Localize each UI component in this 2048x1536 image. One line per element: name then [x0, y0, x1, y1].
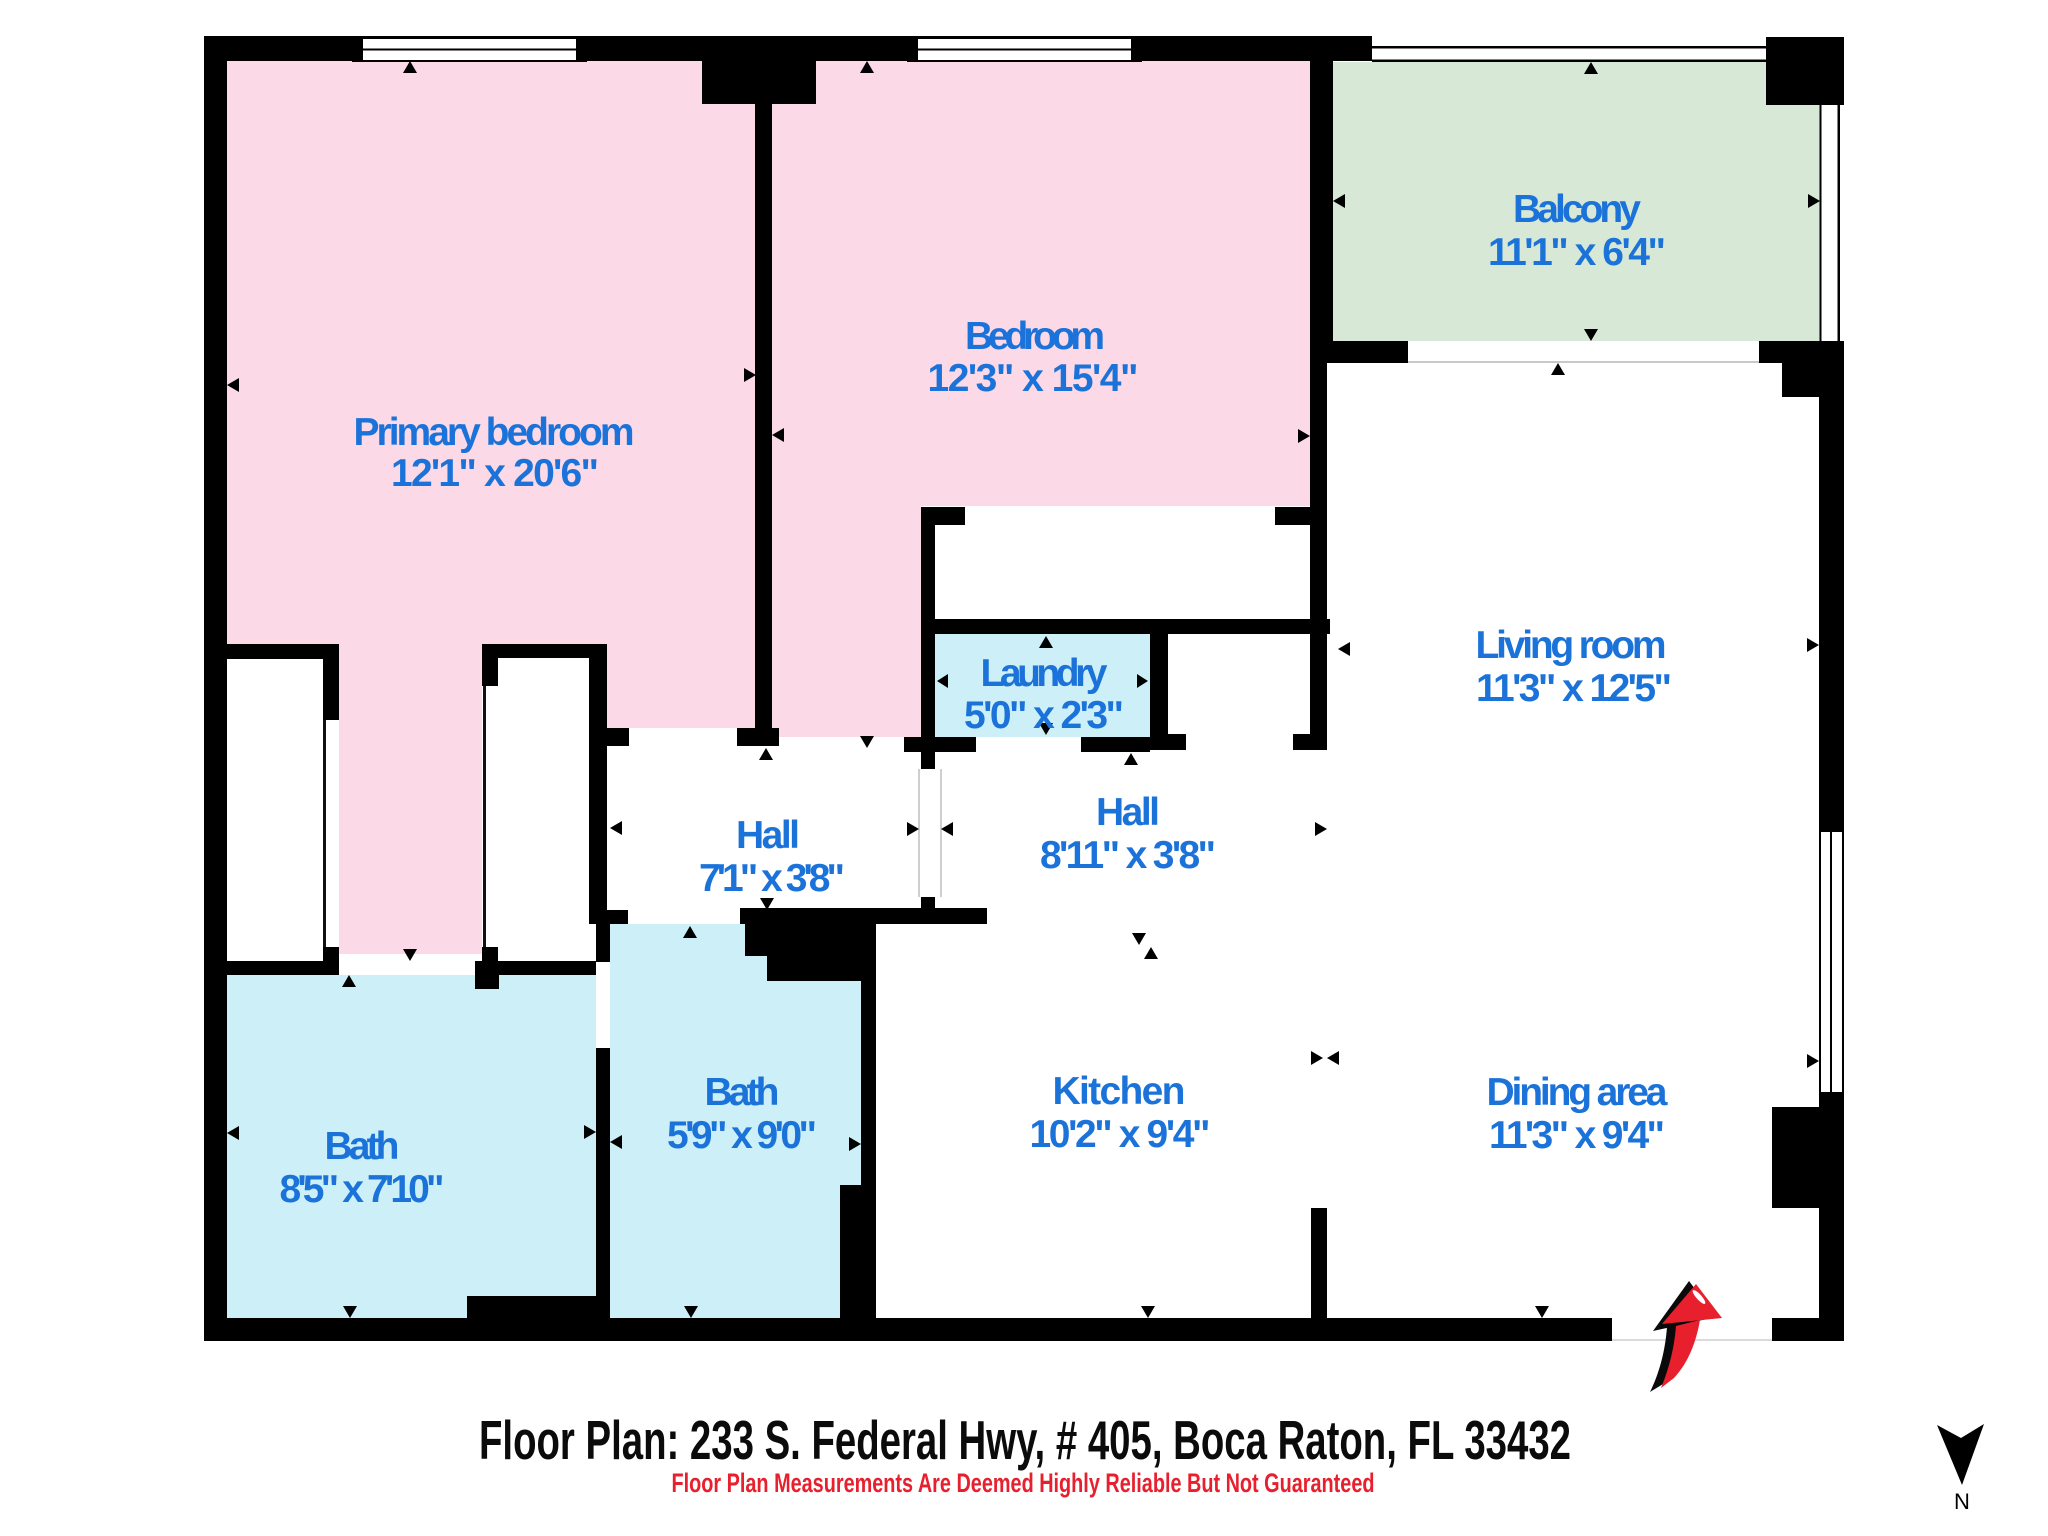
svg-text:N: N	[1954, 1489, 1970, 1514]
svg-text:11'3" x 12'5": 11'3" x 12'5"	[1476, 667, 1672, 710]
svg-text:Hall: Hall	[736, 814, 800, 857]
svg-text:Kitchen: Kitchen	[1053, 1070, 1186, 1113]
svg-text:Balcony: Balcony	[1513, 188, 1641, 231]
svg-text:Floor Plan Measurements Are De: Floor Plan Measurements Are Deemed Highl…	[672, 1468, 1375, 1498]
svg-text:5'0" x 2'3": 5'0" x 2'3"	[964, 694, 1124, 737]
svg-text:11'1" x 6'4": 11'1" x 6'4"	[1488, 231, 1666, 274]
svg-text:11'3" x 9'4": 11'3" x 9'4"	[1489, 1114, 1665, 1157]
svg-text:12'3" x 15'4": 12'3" x 15'4"	[928, 357, 1139, 400]
svg-text:Bedroom: Bedroom	[965, 315, 1105, 358]
svg-text:Primary bedroom: Primary bedroom	[354, 411, 635, 454]
svg-text:7'1" x 3'8": 7'1" x 3'8"	[699, 857, 845, 900]
svg-text:Hall: Hall	[1096, 791, 1160, 834]
svg-text:12'1" x 20'6": 12'1" x 20'6"	[391, 452, 599, 495]
svg-text:8'5" x 7'10": 8'5" x 7'10"	[280, 1168, 445, 1211]
svg-text:Laundry: Laundry	[981, 652, 1108, 695]
svg-text:Floor Plan: 233 S. Federal Hwy: Floor Plan: 233 S. Federal Hwy, # 405, B…	[479, 1409, 1571, 1471]
svg-text:Dining area: Dining area	[1487, 1071, 1668, 1114]
svg-text:5'9" x 9'0": 5'9" x 9'0"	[667, 1114, 817, 1157]
svg-text:Living room: Living room	[1476, 624, 1667, 667]
svg-text:10'2" x 9'4": 10'2" x 9'4"	[1030, 1113, 1211, 1156]
svg-text:8'11" x 3'8": 8'11" x 3'8"	[1040, 834, 1216, 877]
svg-text:Bath: Bath	[705, 1071, 780, 1114]
svg-text:Bath: Bath	[325, 1125, 400, 1168]
